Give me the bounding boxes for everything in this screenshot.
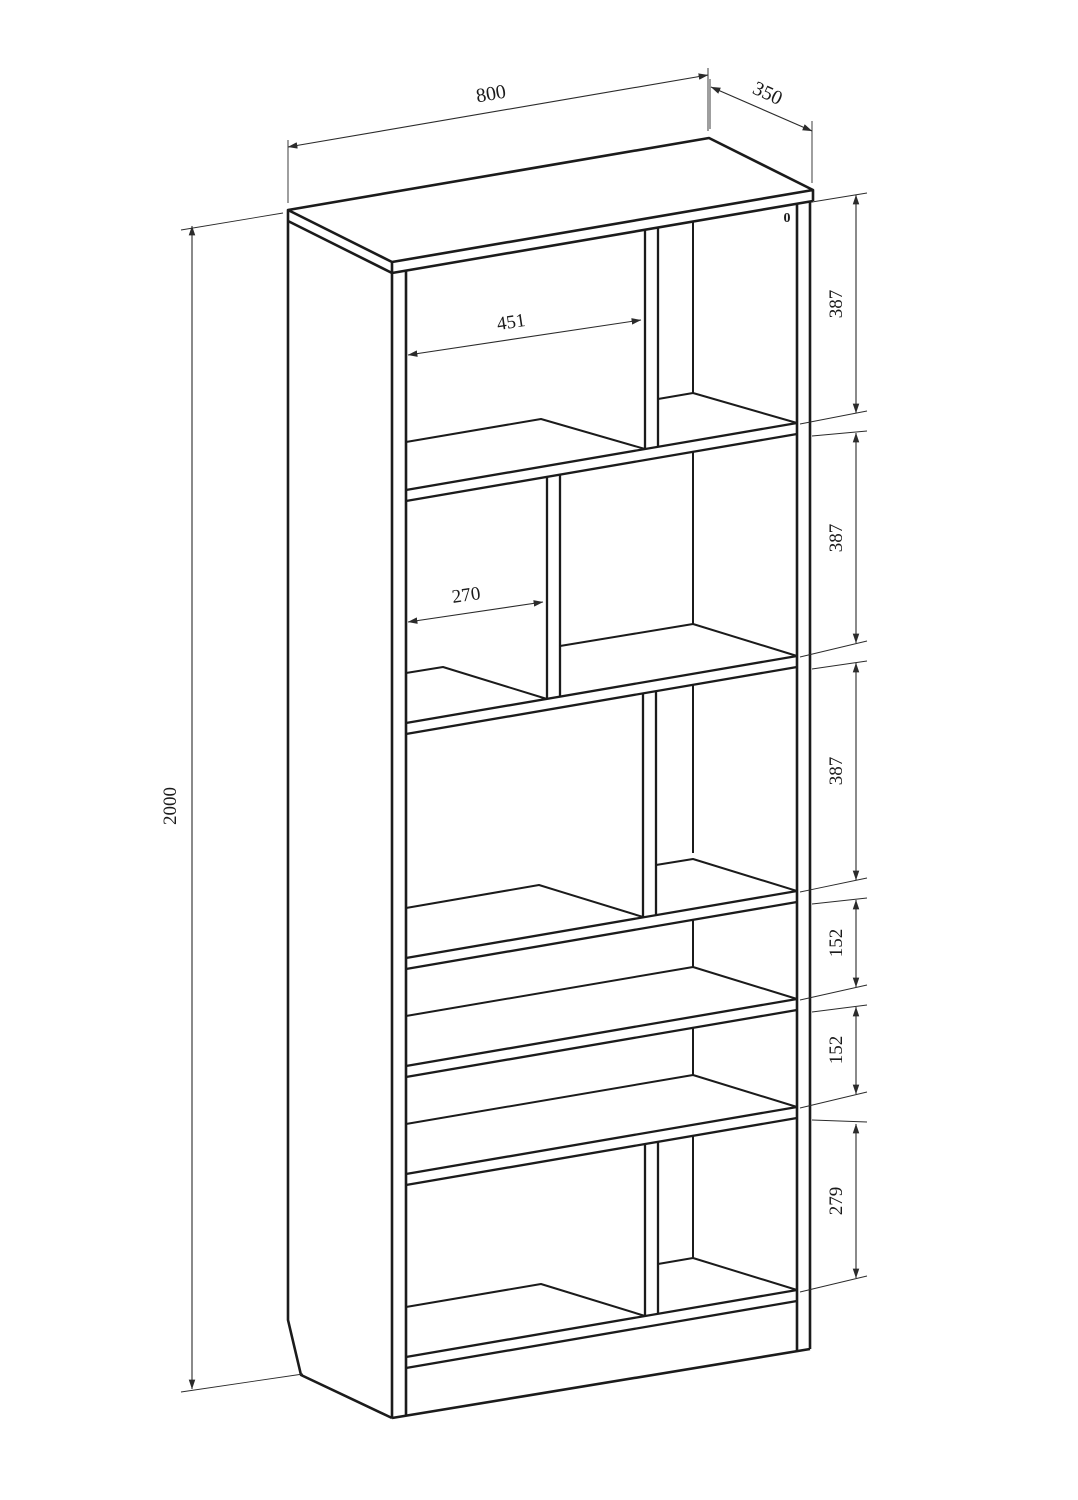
back-wall-floor-junctions	[406, 393, 797, 1316]
right-side-edge	[797, 201, 810, 1351]
shelf-4	[406, 999, 797, 1077]
shelf-1	[406, 423, 797, 501]
dim-inner-width-451-label: 451	[496, 310, 527, 335]
dim-height-extension-lines	[181, 213, 303, 1392]
dim-width-label: 800	[474, 81, 507, 108]
shelf-2	[406, 656, 797, 734]
dim-inner-width-270-line	[408, 602, 543, 622]
dim-depth-350: 350	[710, 77, 812, 183]
dimensions: 800 350 2000 451 270	[160, 68, 867, 1392]
dim-section-3-label: 387	[826, 757, 847, 786]
dim-section-5-label: 152	[826, 1036, 847, 1065]
dim-inner-width-270: 270	[408, 583, 543, 622]
divider-top-section	[645, 228, 658, 449]
divider-bottom-section	[645, 1142, 658, 1316]
dim-width-800: 800	[288, 68, 708, 203]
drawing-page: 800 350 2000 451 270	[0, 0, 1078, 1500]
dim-section-1-label: 387	[826, 290, 847, 319]
dim-section-4-label: 152	[826, 929, 847, 958]
dim-depth-label: 350	[749, 77, 785, 109]
hole-mark: 0	[784, 211, 791, 226]
dim-inner-width-270-label: 270	[451, 583, 482, 608]
cabinet-structure	[288, 138, 813, 1418]
bookshelf-technical-drawing: 800 350 2000 451 270	[0, 0, 1078, 1500]
shelf-3	[406, 891, 797, 969]
top-panel	[288, 138, 813, 273]
divider-second-section	[547, 475, 560, 699]
dim-inner-width-451: 451	[408, 310, 641, 355]
left-side-panel	[288, 221, 406, 1418]
dim-section-6-label: 279	[826, 1187, 847, 1216]
divider-third-section	[643, 691, 656, 917]
dim-height-2000: 2000	[160, 213, 303, 1392]
dim-height-label: 2000	[160, 787, 181, 825]
dim-section-2-label: 387	[826, 524, 847, 553]
shelf-5	[406, 1107, 797, 1185]
